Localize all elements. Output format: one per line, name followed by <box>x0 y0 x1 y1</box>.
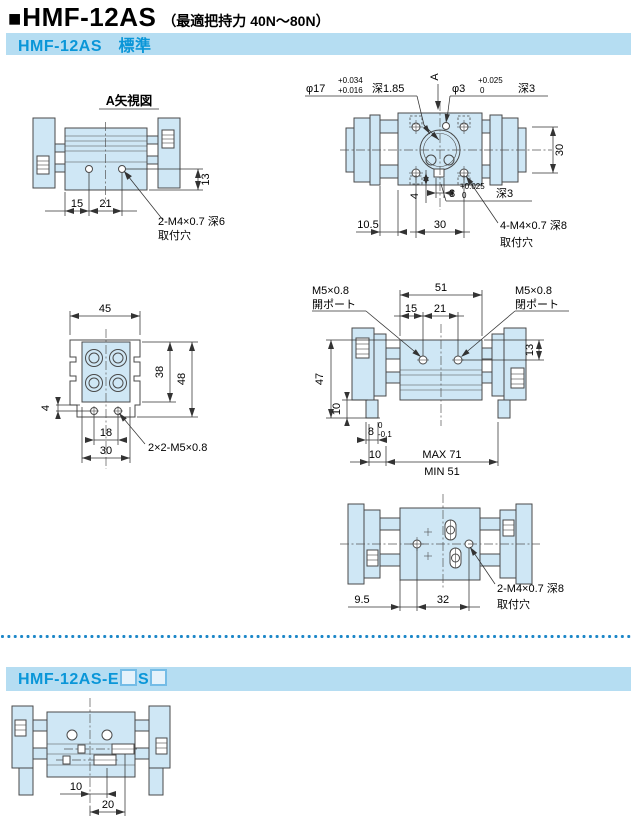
dim-13-label: 13 <box>524 344 536 356</box>
dim-32-label: 32 <box>437 594 449 606</box>
dim-max-label: MAX 71 <box>422 449 461 461</box>
bottom-view-drawing: 9.5 32 2-M4×0.7 深8 取付穴 <box>340 490 631 630</box>
dim-3-tol-upper: +0.025 <box>460 182 485 191</box>
bottom-view-shapes <box>340 494 540 590</box>
sensor-model-mid: S <box>138 671 149 688</box>
grip-force-note: （最適把持力 40N～80N） <box>162 11 329 31</box>
phi3-tol-upper: +0.025 <box>478 76 503 85</box>
model-number: HMF-12AS <box>22 2 156 33</box>
dim-18-label: 18 <box>100 427 112 439</box>
phi3-label: φ3 <box>452 83 465 95</box>
dim-21-label: 21 <box>99 198 111 210</box>
dim-45-label: 45 <box>99 303 111 315</box>
sensor-view-shapes <box>12 698 170 806</box>
top-view-drawing: φ17 +0.034 +0.016 深1.85 A φ3 +0.025 0 深3… <box>300 70 631 260</box>
phi3-tol-lower: 0 <box>480 86 485 95</box>
dim-30-right-label: 30 <box>554 144 566 156</box>
open-port-label: M5×0.8 <box>312 285 349 297</box>
view-direction-a-label: A <box>429 73 441 81</box>
close-port-label2: 閉ポート <box>515 298 559 311</box>
dim-38-label: 38 <box>154 366 166 378</box>
page-title: ■ HMF-12AS （最適把持力 40N～80N） <box>8 2 330 33</box>
dim-4-label: 4 <box>40 405 52 411</box>
view-a-drawing: A矢視図 15 21 13 2-M4×0.7 深6 取付穴 <box>25 92 240 242</box>
phi3-depth: 深3 <box>518 82 535 95</box>
section-header-sensor-label: HMF-12AS-ES <box>18 669 168 689</box>
dim-13-label: 13 <box>200 173 212 185</box>
mount-hole-note: 2-M4×0.7 深8 <box>497 582 564 595</box>
open-port-label2: 開ポート <box>312 298 356 311</box>
mount-hole-note: 4-M4×0.7 深8 <box>500 219 567 232</box>
tap-note: 2×2-M5×0.8 <box>148 442 207 454</box>
dim-8-tol-upper: 0 <box>378 421 383 430</box>
dotted-separator <box>0 634 631 639</box>
phi17-label: φ17 <box>306 83 325 95</box>
dim-21-label: 21 <box>434 303 446 315</box>
dim-3-tol-lower: 0 <box>462 191 467 200</box>
dim-min-label: MIN 51 <box>424 466 459 478</box>
mount-hole-note: 2-M4×0.7 深6 <box>158 215 225 228</box>
end-view-drawing: 45 38 48 4 18 30 2×2-M5×0.8 <box>20 283 245 473</box>
dim-3-depth: 深3 <box>496 187 513 200</box>
dim-10-left-label: 10 <box>331 403 343 415</box>
section-header-standard-label: HMF-12AS 標準 <box>18 32 152 56</box>
dim-30-label: 30 <box>100 445 112 457</box>
dim-8-label: 8 <box>368 426 374 438</box>
view-a-shapes <box>33 118 180 204</box>
placeholder-box-icon <box>120 669 137 686</box>
dim-3-label: 3 <box>449 188 455 200</box>
dim-20-label: 20 <box>102 799 114 811</box>
dim-30-bottom-label: 30 <box>434 219 446 231</box>
section-header-standard: HMF-12AS 標準 <box>6 33 631 55</box>
section-header-sensor: HMF-12AS-ES <box>6 667 631 691</box>
mount-hole-note2: 取付穴 <box>500 235 533 249</box>
mount-hole-note2: 取付穴 <box>497 597 530 611</box>
dim-48-label: 48 <box>176 373 188 385</box>
phi17-depth: 深1.85 <box>372 82 404 95</box>
dim-10-label: 10 <box>70 781 82 793</box>
side-view-shapes <box>352 324 526 426</box>
dim-47-label: 47 <box>314 373 326 385</box>
side-view-drawing: M5×0.8 開ポート M5×0.8 閉ポート 51 15 21 13 47 1… <box>290 282 631 482</box>
sensor-model-prefix: HMF-12AS-E <box>18 671 119 688</box>
dim-15-label: 15 <box>405 303 417 315</box>
close-port-label: M5×0.8 <box>515 285 552 297</box>
dim-10-5-label: 10.5 <box>357 219 378 231</box>
sensor-view-drawing: 10 20 <box>8 698 248 821</box>
title-square-icon: ■ <box>8 6 21 32</box>
mount-hole-note2: 取付穴 <box>158 228 191 242</box>
dim-9-5-label: 9.5 <box>354 594 369 606</box>
phi17-tol-upper: +0.034 <box>338 76 363 85</box>
placeholder-box-icon <box>150 669 167 686</box>
sensor-view-labels: 10 20 <box>70 781 114 811</box>
dim-15-label: 15 <box>71 198 83 210</box>
view-a-title: A矢視図 <box>106 93 153 108</box>
dim-10-bottom-label: 10 <box>369 449 381 461</box>
catalog-page: ■ HMF-12AS （最適把持力 40N～80N） HMF-12AS 標準 <box>0 0 631 821</box>
dim-4-label: 4 <box>409 193 421 199</box>
dim-51-label: 51 <box>435 282 447 294</box>
dim-8-tol-lower: -0.1 <box>378 430 392 439</box>
phi17-tol-lower: +0.016 <box>338 86 363 95</box>
